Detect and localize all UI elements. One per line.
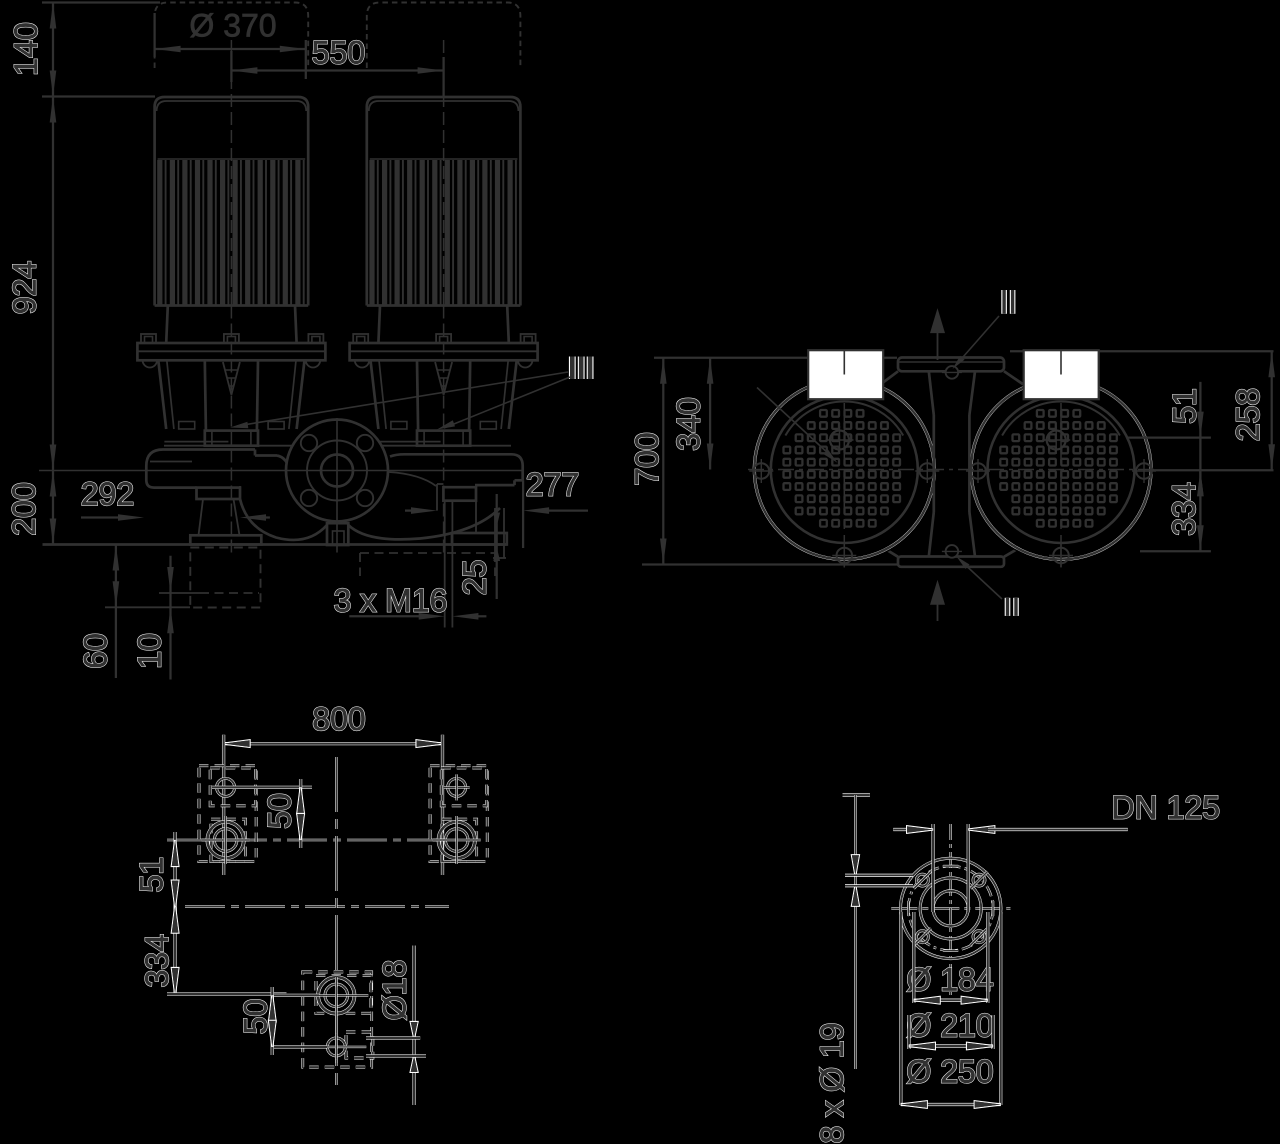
- svg-text:Ø 250: Ø 250: [906, 1054, 993, 1090]
- svg-text:8 x Ø 19: 8 x Ø 19: [814, 1023, 850, 1144]
- svg-text:Ø 184: Ø 184: [906, 961, 993, 997]
- svg-text:51: 51: [1167, 388, 1203, 424]
- svg-text:200: 200: [6, 482, 42, 535]
- svg-text:258: 258: [1230, 388, 1266, 441]
- svg-text:277: 277: [526, 467, 579, 503]
- svg-text:25: 25: [457, 560, 493, 596]
- svg-text:550: 550: [312, 35, 365, 71]
- svg-text:3 x M16: 3 x M16: [334, 583, 448, 619]
- svg-text:340: 340: [671, 397, 707, 450]
- svg-text:140: 140: [8, 22, 44, 75]
- svg-text:800: 800: [312, 701, 365, 737]
- svg-text:51: 51: [133, 857, 169, 893]
- svg-text:Ø 210: Ø 210: [906, 1008, 993, 1044]
- svg-text:292: 292: [81, 476, 134, 512]
- svg-text:60: 60: [78, 633, 114, 669]
- svg-text:DN 125: DN 125: [1112, 790, 1221, 826]
- svg-text:50: 50: [238, 999, 274, 1035]
- svg-text:10: 10: [132, 633, 168, 669]
- svg-text:334: 334: [139, 934, 175, 987]
- svg-text:Ø 370: Ø 370: [189, 8, 276, 44]
- svg-text:50: 50: [261, 793, 297, 829]
- svg-text:334: 334: [1166, 482, 1202, 535]
- svg-text:700: 700: [629, 432, 665, 485]
- svg-text:924: 924: [7, 261, 43, 314]
- svg-text:Ø18: Ø18: [377, 960, 413, 1020]
